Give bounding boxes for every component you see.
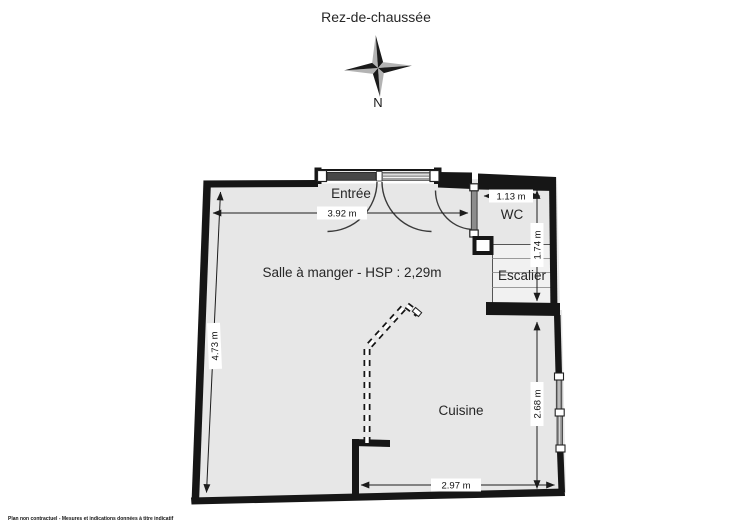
- dimension-label-cuisine-width: 2.97 m: [431, 479, 481, 492]
- page-title: Rez-de-chaussée: [321, 9, 431, 25]
- wall-kitchen-stub-vertical: [352, 439, 359, 500]
- room-label-escalier: Escalier: [498, 268, 547, 283]
- room-label-cuisine: Cuisine: [438, 403, 483, 418]
- wc-door-jamb-top: [470, 184, 478, 191]
- wall-top-left: [204, 180, 319, 188]
- room-label-wc: WC: [501, 207, 524, 222]
- wall-under-stairs: [486, 302, 560, 316]
- floorplan-svg: Rez-de-chaussée N: [0, 0, 750, 530]
- wall-top-wc: [478, 174, 556, 192]
- dimension-label-cuisine-depth: 2.68 m: [531, 382, 544, 426]
- window-jamb-middle: [555, 409, 564, 416]
- room-label-entree: Entrée: [331, 186, 371, 201]
- window-jamb-top: [555, 373, 564, 380]
- floorplan-page: Rez-de-chaussée N: [0, 0, 750, 530]
- wc-door-leaf: [471, 191, 477, 231]
- duct-box: [475, 238, 492, 253]
- svg-text:4.73 m: 4.73 m: [209, 331, 221, 361]
- dimension-label-entrance-width: 3.92 m: [317, 207, 367, 220]
- door-leaf-left: [327, 172, 376, 180]
- wc-door-jamb-bottom: [470, 230, 478, 237]
- svg-text:1.74 m: 1.74 m: [532, 230, 543, 259]
- door-leaf-right: [382, 172, 430, 180]
- dimension-label-wc-depth: 1.74 m: [531, 223, 544, 267]
- compass-north-label: N: [373, 95, 382, 110]
- svg-text:3.92 m: 3.92 m: [327, 208, 356, 219]
- compass-rose-icon: [342, 33, 414, 100]
- footer-disclaimer: Plan non contractuel - Mesures et indica…: [8, 516, 174, 522]
- door-jamb-right: [430, 171, 439, 182]
- room-label-salle-a-manger: Salle à manger - HSP : 2,29m: [262, 265, 441, 280]
- door-meeting-stile: [377, 172, 383, 182]
- wall-top-mid: [438, 172, 472, 189]
- dimension-label-wc-width: 1.13 m: [489, 190, 533, 203]
- door-jamb-left: [318, 171, 327, 182]
- window-jamb-bottom: [556, 445, 565, 452]
- dimension-label-left-wall: 4.73 m: [207, 323, 222, 370]
- svg-text:2.97 m: 2.97 m: [441, 480, 470, 491]
- svg-text:1.13 m: 1.13 m: [496, 191, 525, 202]
- svg-text:2.68 m: 2.68 m: [532, 389, 543, 418]
- wall-right-upper: [549, 177, 558, 315]
